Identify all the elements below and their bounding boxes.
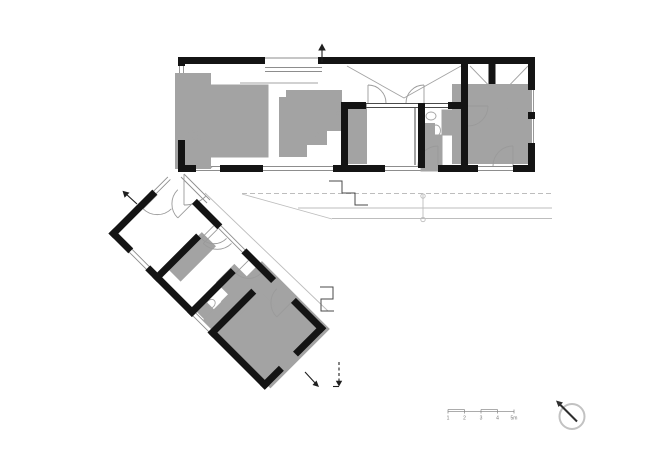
furniture-main	[184, 66, 529, 168]
scale-bar-label: 3	[480, 416, 483, 422]
floor-plan-drawing: 12345m	[0, 0, 650, 460]
floor-plan-page: 12345m	[0, 0, 650, 460]
scale-bar: 12345m	[447, 410, 518, 422]
north-arrow	[556, 401, 585, 430]
scale-bar-label: 2	[463, 416, 466, 422]
scale-bar-label: 1	[447, 416, 450, 422]
scale-bar-label: 4	[496, 416, 499, 422]
scale-bar-label: 5m	[511, 416, 518, 422]
